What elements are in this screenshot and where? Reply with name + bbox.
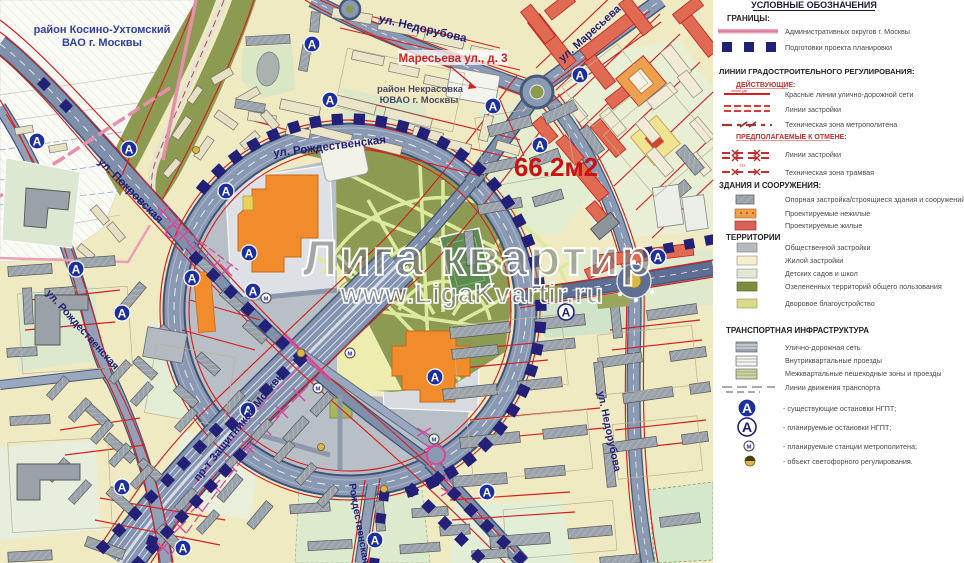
svg-text:Жилой застройки: Жилой застройки bbox=[785, 256, 843, 265]
svg-text:A: A bbox=[536, 138, 545, 152]
svg-text:ВАО г. Москвы: ВАО г. Москвы bbox=[62, 37, 142, 49]
svg-text:66.2м2: 66.2м2 bbox=[514, 152, 598, 182]
svg-text:Маресьева ул., д. 3: Маресьева ул., д. 3 bbox=[399, 53, 508, 65]
svg-text:A: A bbox=[118, 480, 127, 494]
svg-text:м: м bbox=[431, 437, 436, 444]
svg-text:A: A bbox=[576, 68, 585, 82]
svg-text:A: A bbox=[371, 533, 380, 547]
svg-text:A: A bbox=[326, 93, 335, 107]
svg-text:Проектируемые жилые: Проектируемые жилые bbox=[785, 221, 862, 230]
svg-text:м: м bbox=[347, 351, 352, 358]
svg-text:м: м bbox=[746, 444, 751, 451]
svg-text:Линии движения транспорта: Линии движения транспорта bbox=[785, 383, 880, 392]
svg-text:Детских садов и школ: Детских садов и школ bbox=[785, 269, 858, 278]
svg-text:Межквартальные пешеходные зоны: Межквартальные пешеходные зоны и проезды bbox=[785, 369, 942, 378]
svg-text:A: A bbox=[245, 246, 254, 260]
svg-text:A: A bbox=[742, 400, 752, 416]
svg-text:A: A bbox=[179, 541, 188, 555]
svg-text:Улично-дорожная сеть: Улично-дорожная сеть bbox=[785, 343, 861, 352]
svg-text:Внутриквартальные проезды: Внутриквартальные проезды bbox=[785, 356, 882, 365]
svg-text:УСЛОВНЫЕ ОБОЗНАЧЕНИЯ: УСЛОВНЫЕ ОБОЗНАЧЕНИЯ bbox=[751, 0, 877, 10]
svg-text:- объект светофорного регулиро: - объект светофорного регулирования. bbox=[783, 457, 913, 466]
svg-text:A: A bbox=[489, 99, 498, 113]
svg-text:Линии застройки: Линии застройки bbox=[785, 105, 841, 114]
svg-text:A: A bbox=[742, 419, 752, 435]
svg-text:A: A bbox=[72, 262, 81, 276]
svg-text:ГРАНИЦЫ:: ГРАНИЦЫ: bbox=[727, 14, 770, 23]
svg-text:Озелененных территорий общего: Озелененных территорий общего пользовани… bbox=[785, 282, 942, 291]
svg-text:Подготовки проекта планировки: Подготовки проекта планировки bbox=[785, 43, 892, 52]
svg-text:ЮВАО г. Москвы: ЮВАО г. Москвы bbox=[380, 95, 459, 106]
svg-text:www.LigaKvartir.ru: www.LigaKvartir.ru bbox=[339, 278, 603, 309]
svg-text:ЛИНИИ ГРАДОСТРОИТЕЛЬНОГО РЕГУЛ: ЛИНИИ ГРАДОСТРОИТЕЛЬНОГО РЕГУЛИРОВАНИЯ: bbox=[719, 67, 915, 76]
svg-text:- планируемые остановки НГПТ;: - планируемые остановки НГПТ; bbox=[783, 423, 891, 432]
svg-text:Линии застройки: Линии застройки bbox=[785, 150, 841, 159]
svg-text:A: A bbox=[249, 284, 258, 298]
svg-text:Опорная застройка/строящиеся з: Опорная застройка/строящиеся здания и со… bbox=[785, 195, 964, 204]
svg-text:A: A bbox=[125, 142, 134, 156]
svg-text:Общественной застройки: Общественной застройки bbox=[785, 243, 870, 252]
svg-text:ПРЕДПОЛАГАЕМЫЕ К ОТМЕНЕ:: ПРЕДПОЛАГАЕМЫЕ К ОТМЕНЕ: bbox=[736, 134, 847, 141]
svg-text:ТРАНСПОРТНАЯ ИНФРАСТРУКТУРА: ТРАНСПОРТНАЯ ИНФРАСТРУКТУРА bbox=[726, 326, 869, 335]
svg-text:ДЕЙСТВУЮЩИЕ:: ДЕЙСТВУЮЩИЕ: bbox=[736, 80, 795, 89]
svg-text:Дворовое благоустройство: Дворовое благоустройство bbox=[785, 299, 875, 308]
svg-text:район Некрасовка: район Некрасовка bbox=[377, 84, 464, 95]
svg-text:ТЗТ: ТЗТ bbox=[739, 164, 746, 168]
svg-text:A: A bbox=[118, 306, 127, 320]
svg-text:- планируемые станции метропол: - планируемые станции метрополитена; bbox=[783, 442, 917, 451]
svg-text:ЗДАНИЯ И СООРУЖЕНИЯ:: ЗДАНИЯ И СООРУЖЕНИЯ: bbox=[719, 181, 821, 190]
svg-text:Техническая зона метрополитена: Техническая зона метрополитена bbox=[785, 120, 897, 129]
svg-text:Красные линии улично-дорожной: Красные линии улично-дорожной сети bbox=[785, 90, 913, 99]
svg-text:- существующие остановки НГПТ;: - существующие остановки НГПТ; bbox=[783, 404, 896, 413]
svg-text:A: A bbox=[654, 250, 663, 264]
svg-text:линии удс: линии удс bbox=[731, 89, 747, 93]
svg-text:A: A bbox=[431, 370, 440, 384]
svg-text:A: A bbox=[308, 37, 317, 51]
svg-text:A: A bbox=[33, 134, 42, 148]
svg-text:Проектируемые нежилые: Проектируемые нежилые bbox=[785, 209, 870, 218]
svg-text:район Косино-Ухтомский: район Косино-Ухтомский bbox=[34, 24, 171, 36]
svg-text:м: м bbox=[263, 296, 268, 303]
svg-text:A: A bbox=[188, 271, 197, 285]
svg-text:м: м bbox=[315, 386, 320, 393]
svg-text:A: A bbox=[222, 184, 231, 198]
svg-text:A: A bbox=[483, 485, 492, 499]
svg-text:ТЕРРИТОРИИ: ТЕРРИТОРИИ bbox=[726, 233, 781, 242]
svg-text:Техническая зона трамвая: Техническая зона трамвая bbox=[785, 168, 874, 177]
svg-text:Административных округов г. Мо: Административных округов г. Москвы bbox=[785, 27, 910, 36]
